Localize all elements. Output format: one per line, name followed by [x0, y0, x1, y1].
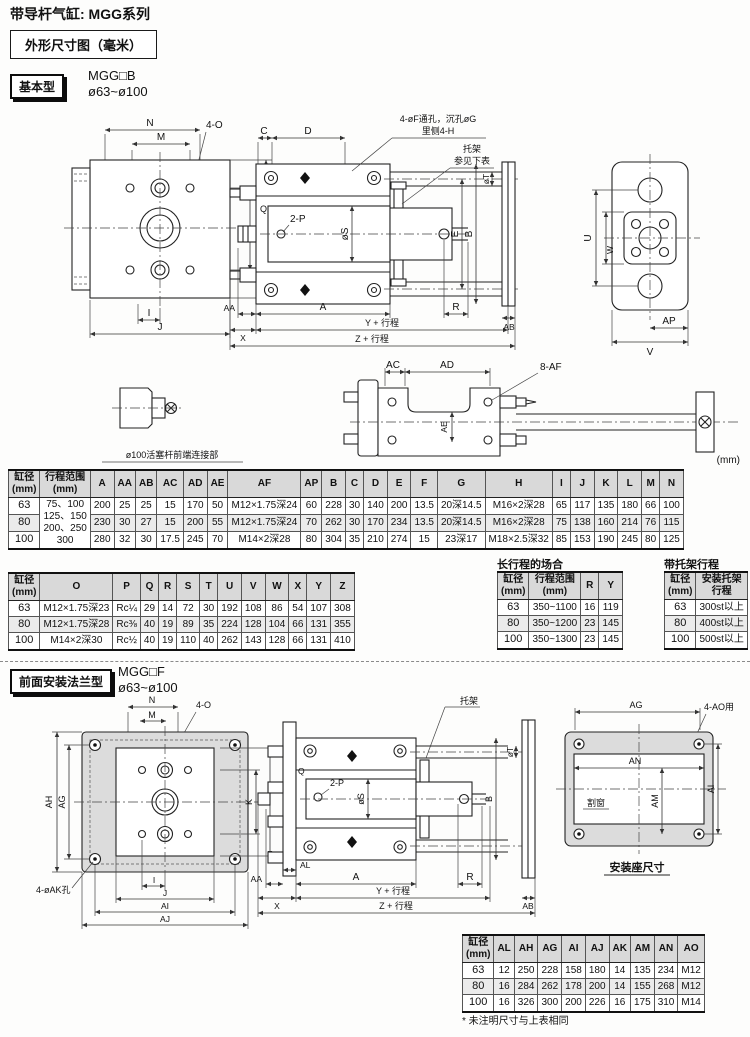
rod-end-caption: ø100活塞杆前端连接部: [126, 449, 219, 460]
dimension-table: 缸径 (mm)ALAHAGAIAJAKAMANAO631225022815818…: [462, 934, 705, 1013]
table-cell: 63: [665, 600, 696, 616]
model-basic-code: MGG□B: [88, 68, 148, 84]
table-cell: 200: [387, 498, 411, 515]
table-cell: 117: [570, 498, 594, 515]
bracket-stroke-table: 缸径 (mm)安装托架 行程63300st以上80400st以上100500st…: [664, 571, 748, 650]
mount-base-caption: 安装座尺寸: [610, 860, 665, 874]
table-cell: 66: [289, 617, 307, 633]
table-cell: 234: [654, 963, 678, 979]
table-row: 801628426217820014155268M12: [463, 979, 705, 995]
column-header: AL: [494, 935, 514, 963]
column-header: V: [241, 573, 265, 601]
table-cell: 107: [307, 601, 331, 617]
dim-label-8af: 8-AF: [540, 362, 562, 373]
flange-dims-table: 缸径 (mm)ALAHAGAIAJAKAMANAO631225022815818…: [462, 934, 705, 1013]
table-cell: 145: [599, 616, 623, 632]
table-cell: 180: [618, 498, 642, 515]
model-basic-bore: ø63~ø100: [88, 84, 148, 100]
flange-table-footnote: * 未注明尺寸与上表相同: [462, 1012, 569, 1027]
dim-label-z-stroke: Z + 行程: [355, 333, 389, 344]
table-cell: 153: [570, 531, 594, 549]
callout-holes-line2: 里侧4-H: [422, 125, 455, 136]
table-row: 100M14×2深30Rc½40191104026214312866131410: [9, 633, 355, 650]
section-divider: [0, 661, 750, 662]
table-cell: 25: [135, 498, 156, 515]
table-cell: 75: [552, 514, 570, 531]
table-cell: M12×1.75深23: [40, 601, 113, 617]
table-cell: 308: [331, 601, 355, 617]
column-header: 缸径 (mm): [9, 573, 40, 601]
table-cell: 178: [562, 979, 586, 995]
rod-end-side-view: AC AD 8-AF AE: [344, 360, 740, 456]
column-header: W: [265, 573, 289, 601]
table-cell: 262: [538, 979, 562, 995]
table-cell: 100: [660, 498, 684, 515]
table-cell: 80: [463, 979, 494, 995]
dim-label-c: C: [260, 126, 267, 137]
table-cell: 23: [581, 616, 599, 632]
dim-label-4o: 4-O: [196, 700, 211, 710]
table-cell: 192: [218, 601, 242, 617]
table-cell: 100: [665, 632, 696, 649]
section-tag-basic: 基本型: [10, 74, 64, 99]
table-cell: M12: [678, 979, 704, 995]
flange-side-view: 托架 Q 2-P øS: [251, 695, 535, 917]
table-cell: 160: [594, 514, 618, 531]
table-cell: 131: [307, 617, 331, 633]
table-cell: 30: [114, 514, 135, 531]
table-cell: 19: [159, 633, 177, 650]
flange-front-view: N M 4-O AH AG K: [36, 695, 274, 929]
dim-label-aj: AJ: [160, 914, 170, 924]
table-cell: 170: [364, 514, 388, 531]
dim-label-4o: 4-O: [206, 120, 223, 131]
table-cell: 13.5: [411, 514, 437, 531]
table-cell: 14: [159, 601, 177, 617]
dim-label-k: K: [244, 799, 254, 805]
column-header: Z: [331, 573, 355, 601]
column-header: R: [581, 572, 599, 600]
table-cell: 108: [241, 601, 265, 617]
table-row: 8023030271520055M12×1.75深247026230170234…: [9, 514, 684, 531]
dimension-table: 缸径 (mm)OPQRSTUVWXYZ63M12×1.75深23Rc¼29147…: [8, 572, 355, 651]
bracket-stroke-table-title: 带托架行程: [664, 556, 719, 572]
table-cell: 262: [322, 514, 346, 531]
dim-label-b: B: [484, 796, 494, 802]
table-cell: 200: [562, 995, 586, 1012]
column-header: N: [660, 470, 684, 498]
column-header: T: [200, 573, 218, 601]
column-header: K: [594, 470, 618, 498]
table-cell: 143: [241, 633, 265, 650]
table-cell: 12: [494, 963, 514, 979]
column-header: S: [177, 573, 200, 601]
table-cell: 70: [301, 514, 322, 531]
basic-dims-table-2: 缸径 (mm)OPQRSTUVWXYZ63M12×1.75深23Rc¼29147…: [8, 572, 355, 651]
table-cell: Rc¼: [113, 601, 141, 617]
dim-label-d: D: [304, 126, 311, 137]
column-header: 缸径 (mm): [9, 470, 40, 498]
column-header: 缸径 (mm): [665, 572, 696, 600]
column-header: AM: [631, 935, 655, 963]
table-row: 100280323017.524570M14×2深288030435210274…: [9, 531, 684, 549]
dim-label-y-stroke: Y + 行程: [365, 317, 399, 328]
column-header: AF: [228, 470, 301, 498]
table-cell: M14×2深28: [228, 531, 301, 549]
dim-label-x: X: [274, 901, 280, 911]
model-flange: MGG□F ø63~ø100: [118, 664, 178, 697]
dim-label-ai: AI: [706, 785, 716, 794]
table-cell: 300st以上: [696, 600, 747, 616]
column-header: 缸径 (mm): [498, 572, 529, 600]
table-cell: 100: [9, 531, 40, 549]
column-header: AN: [654, 935, 678, 963]
table-cell: 14: [609, 979, 630, 995]
callout-bracket: 托架: [460, 695, 478, 706]
table-cell: 50: [207, 498, 228, 515]
dim-label-m: M: [157, 132, 165, 143]
table-cell: 230: [90, 514, 114, 531]
long-stroke-table-title: 长行程的场合: [497, 556, 563, 572]
dim-label-al: AL: [300, 860, 311, 870]
table-cell: 17.5: [157, 531, 183, 549]
column-header: AG: [538, 935, 562, 963]
table-cell: 200: [90, 498, 114, 515]
column-header: AP: [301, 470, 322, 498]
table-cell: 20深14.5: [437, 498, 485, 515]
table-cell: 32: [114, 531, 135, 549]
column-header: 安装托架 行程: [696, 572, 747, 600]
table-cell: 63: [9, 601, 40, 617]
column-header: H: [485, 470, 552, 498]
table-cell: M12: [678, 963, 704, 979]
dim-label-u: U: [583, 234, 594, 241]
table-cell: 355: [331, 617, 355, 633]
table-cell: 145: [599, 632, 623, 649]
basic-right-end-view: U W AP V: [583, 154, 700, 358]
table-cell: 23: [581, 632, 599, 649]
dim-label-2p: 2-P: [330, 778, 344, 788]
table-cell: 135: [594, 498, 618, 515]
column-header: R: [159, 573, 177, 601]
table-row: 80400st以上: [665, 616, 748, 632]
dim-label-an: AN: [629, 756, 642, 766]
table-row: 631225022815818014135234M12: [463, 963, 705, 979]
dim-label-ot: øT: [481, 174, 491, 184]
dim-label-ap: AP: [662, 316, 676, 327]
column-header: Y: [599, 572, 623, 600]
table-cell: 245: [183, 531, 207, 549]
table-cell: 228: [322, 498, 346, 515]
column-header: AB: [135, 470, 156, 498]
table-cell: 29: [140, 601, 158, 617]
basic-side-view: C D Q 2-P øS: [224, 114, 518, 350]
table-cell: 60: [301, 498, 322, 515]
dim-label-e: E: [450, 230, 461, 237]
table-cell: 200: [585, 979, 609, 995]
table-cell: 310: [654, 995, 678, 1012]
table-cell: Rc⅜: [113, 617, 141, 633]
column-header: D: [364, 470, 388, 498]
table-cell: M12×1.75深24: [228, 514, 301, 531]
table-cell: 40: [140, 633, 158, 650]
column-header: Q: [140, 573, 158, 601]
model-flange-code: MGG□F: [118, 664, 178, 680]
table-cell: 125: [660, 531, 684, 549]
table-cell: 175: [631, 995, 655, 1012]
dim-label-i: I: [153, 875, 155, 885]
rod-end-connector-piece: ø100活塞杆前端连接部: [102, 388, 243, 462]
table-cell: 100: [9, 633, 40, 650]
column-header: 行程范围 (mm): [40, 470, 90, 498]
column-header: AH: [514, 935, 538, 963]
table-cell: 19: [159, 617, 177, 633]
table-cell: 214: [618, 514, 642, 531]
table-cell: 262: [218, 633, 242, 650]
table-cell: 63: [463, 963, 494, 979]
table-cell: 200: [183, 514, 207, 531]
table-cell: 63: [9, 498, 40, 515]
table-cell: 268: [654, 979, 678, 995]
dim-label-2p: 2-P: [290, 214, 306, 225]
table-cell: 350~1200: [529, 616, 581, 632]
basic-type-drawing: N M 4-O K L I J: [0, 108, 750, 360]
table-cell: M16×2深28: [485, 498, 552, 515]
callout-bracket-line2: 参见下表: [454, 155, 490, 166]
dim-label-ae: AE: [439, 421, 449, 433]
table-cell: M12×1.75深28: [40, 617, 113, 633]
column-header: AC: [157, 470, 183, 498]
table-cell: 15: [157, 498, 183, 515]
table-cell: Rc½: [113, 633, 141, 650]
column-header: Y: [307, 573, 331, 601]
dimension-table: 缸径 (mm)行程范围 (mm)AAAABACADAEAFAPBCDEFGHIJ…: [8, 469, 684, 550]
table-cell: 66: [642, 498, 660, 515]
basic-dims-table-1: 缸径 (mm)行程范围 (mm)AAAABACADAEAFAPBCDEFGHIJ…: [8, 469, 684, 550]
table-row: 80350~120023145: [498, 616, 623, 632]
column-header: B: [322, 470, 346, 498]
table-cell: 16: [494, 995, 514, 1012]
dim-label-am: AM: [650, 794, 660, 808]
table-cell: 170: [183, 498, 207, 515]
dimension-drawing-box-label: 外形尺寸图（毫米）: [10, 30, 157, 59]
table-row: 63M12×1.75深23Rc¼291472301921088654107308: [9, 601, 355, 617]
dim-label-4ak: 4-øAK孔: [36, 885, 71, 895]
table-cell: 304: [322, 531, 346, 549]
dim-label-n: N: [149, 695, 156, 705]
table-cell: 326: [514, 995, 538, 1012]
table-row: 63350~110016119: [498, 600, 623, 616]
column-header: J: [570, 470, 594, 498]
table-cell: 210: [364, 531, 388, 549]
mount-base-window-label: 割窗: [587, 797, 605, 808]
callout-holes-line1: 4-øF通孔，沉孔øG: [400, 114, 477, 124]
long-stroke-table: 缸径 (mm)行程范围 (mm)RY63350~11001611980350~1…: [497, 571, 623, 650]
dim-label-ag: AG: [57, 795, 67, 808]
table-cell: 80: [301, 531, 322, 549]
table-cell: 500st以上: [696, 632, 747, 649]
table-cell: 65: [552, 498, 570, 515]
column-header: P: [113, 573, 141, 601]
table-cell: 110: [177, 633, 200, 650]
table-cell: 80: [498, 616, 529, 632]
column-header: AK: [609, 935, 630, 963]
table-cell: 75、100 125、150 200、250 300: [40, 498, 90, 550]
table-cell: 76: [642, 514, 660, 531]
dim-label-ab: AB: [503, 322, 515, 332]
mount-base-view: AG 4-AO用 AN AM AI 割窗 安装座尺寸: [556, 700, 734, 875]
table-cell: M14: [678, 995, 704, 1012]
dimension-table: 缸径 (mm)行程范围 (mm)RY63350~11001611980350~1…: [497, 571, 623, 650]
table-cell: 155: [631, 979, 655, 995]
dim-label-aa: AA: [251, 874, 263, 884]
dim-label-a: A: [353, 872, 360, 883]
table-cell: 16: [494, 979, 514, 995]
table-cell: 35: [345, 531, 363, 549]
table-cell: 228: [538, 963, 562, 979]
table-cell: 25: [114, 498, 135, 515]
table-row: 100350~130023145: [498, 632, 623, 649]
table-cell: 135: [631, 963, 655, 979]
dim-label-i: I: [148, 308, 151, 319]
callout-bracket-line1: 托架: [463, 143, 481, 154]
section-tag-flange: 前面安装法兰型: [10, 669, 112, 694]
column-header: L: [618, 470, 642, 498]
table-cell: 350~1100: [529, 600, 581, 616]
column-header: O: [40, 573, 113, 601]
table-cell: 30: [345, 514, 363, 531]
column-header: C: [345, 470, 363, 498]
dim-label-x: X: [240, 333, 246, 343]
column-header: AE: [207, 470, 228, 498]
table-cell: 23深17: [437, 531, 485, 549]
table-cell: 35: [200, 617, 218, 633]
table-cell: 300: [538, 995, 562, 1012]
flange-type-drawing: N M 4-O AH AG K: [0, 694, 750, 932]
column-header: AO: [678, 935, 704, 963]
table-cell: 158: [562, 963, 586, 979]
table-cell: M14×2深30: [40, 633, 113, 650]
dim-label-m: M: [148, 710, 156, 720]
column-header: AA: [114, 470, 135, 498]
dim-label-ag: AG: [629, 700, 642, 710]
dim-label-ab: AB: [522, 901, 534, 911]
column-header: U: [218, 573, 242, 601]
column-header: M: [642, 470, 660, 498]
dim-label-j: J: [163, 888, 167, 898]
table-cell: 16: [609, 995, 630, 1012]
table-row: 100500st以上: [665, 632, 748, 649]
table-cell: 100: [498, 632, 529, 649]
table-cell: 245: [618, 531, 642, 549]
table-cell: 234: [387, 514, 411, 531]
table-cell: 15: [411, 531, 437, 549]
table-cell: 63: [498, 600, 529, 616]
table-cell: 128: [241, 617, 265, 633]
table-row: 80M12×1.75深28Rc⅜401989352241281046613135…: [9, 617, 355, 633]
table-cell: 119: [599, 600, 623, 616]
table-cell: 226: [585, 995, 609, 1012]
column-header: 缸径 (mm): [463, 935, 494, 963]
dim-label-ai: AI: [161, 901, 169, 911]
table-cell: 20深14.5: [437, 514, 485, 531]
table-row: 6375、100 125、150 200、250 300200252515170…: [9, 498, 684, 515]
table-cell: 284: [514, 979, 538, 995]
column-header: X: [289, 573, 307, 601]
table-cell: 104: [265, 617, 289, 633]
dim-label-q: Q: [260, 204, 267, 214]
table-cell: 80: [9, 617, 40, 633]
table-cell: M12×1.75深24: [228, 498, 301, 515]
table-cell: M18×2.5深32: [485, 531, 552, 549]
table-cell: 55: [207, 514, 228, 531]
table-cell: 72: [177, 601, 200, 617]
table-cell: 85: [552, 531, 570, 549]
table-cell: 40: [140, 617, 158, 633]
table-cell: 80: [642, 531, 660, 549]
table-cell: 128: [265, 633, 289, 650]
table-cell: 140: [364, 498, 388, 515]
table-cell: 14: [609, 963, 630, 979]
column-header: AJ: [585, 935, 609, 963]
page-title: 带导杆气缸: MGG系列: [10, 4, 150, 24]
column-header: AD: [183, 470, 207, 498]
table-cell: 16: [581, 600, 599, 616]
dim-label-b: B: [464, 230, 475, 237]
table-cell: 27: [135, 514, 156, 531]
dim-label-ot: øT: [505, 747, 515, 757]
table-cell: 89: [177, 617, 200, 633]
table-cell: 15: [157, 514, 183, 531]
table-cell: 100: [463, 995, 494, 1012]
dim-label-r: R: [466, 872, 473, 883]
column-header: E: [387, 470, 411, 498]
catalog-page: 带导杆气缸: MGG系列 外形尺寸图（毫米） 基本型 MGG□B ø63~ø10…: [0, 0, 750, 1037]
table-cell: 250: [514, 963, 538, 979]
dim-label-j: J: [158, 322, 163, 333]
table-cell: 80: [665, 616, 696, 632]
table-cell: 190: [594, 531, 618, 549]
column-header: 行程范围 (mm): [529, 572, 581, 600]
dim-label-z-stroke: Z + 行程: [379, 900, 413, 911]
table-cell: 138: [570, 514, 594, 531]
table-row: 63300st以上: [665, 600, 748, 616]
model-basic: MGG□B ø63~ø100: [88, 68, 148, 101]
dimension-table: 缸径 (mm)安装托架 行程63300st以上80400st以上100500st…: [664, 571, 748, 650]
column-header: AI: [562, 935, 586, 963]
table-cell: 30: [200, 601, 218, 617]
table-cell: 280: [90, 531, 114, 549]
table-cell: 274: [387, 531, 411, 549]
table-cell: M16×2深28: [485, 514, 552, 531]
table-cell: 410: [331, 633, 355, 650]
column-header: F: [411, 470, 437, 498]
table-cell: 80: [9, 514, 40, 531]
dim-label-ah: AH: [44, 796, 54, 809]
dim-label-w: W: [605, 246, 615, 254]
table-cell: 180: [585, 963, 609, 979]
table-cell: 86: [265, 601, 289, 617]
column-header: I: [552, 470, 570, 498]
dim-label-q: Q: [298, 766, 305, 776]
dim-label-r: R: [452, 302, 459, 313]
dim-label-ad: AD: [440, 360, 454, 371]
table-cell: 66: [289, 633, 307, 650]
dim-label-4ao: 4-AO用: [704, 702, 734, 712]
column-header: G: [437, 470, 485, 498]
dim-label-n: N: [146, 118, 153, 129]
dim-label-v: V: [647, 347, 654, 358]
